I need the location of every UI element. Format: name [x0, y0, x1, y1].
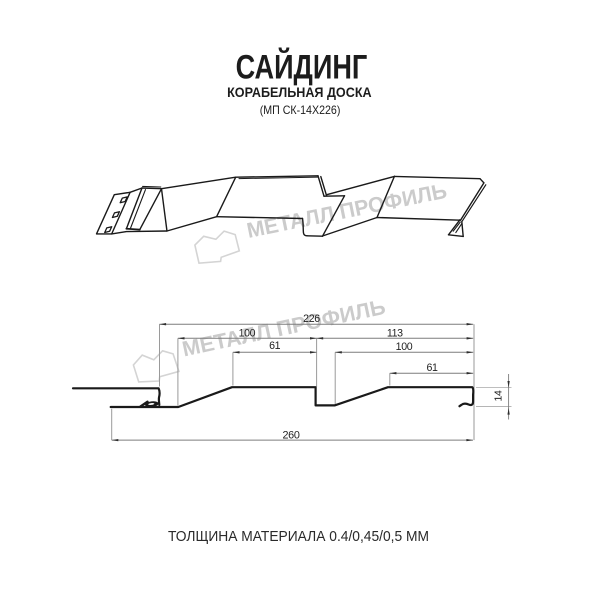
svg-text:МЕТАЛЛ ПРОФИЛЬ: МЕТАЛЛ ПРОФИЛЬ: [180, 295, 387, 362]
svg-text:КОРАБЕЛЬНАЯ ДОСКА: КОРАБЕЛЬНАЯ ДОСКА: [227, 85, 372, 100]
svg-text:МЕТАЛЛ ПРОФИЛЬ: МЕТАЛЛ ПРОФИЛЬ: [245, 179, 449, 243]
svg-text:ТОЛЩИНА МАТЕРИАЛА 0.4/0,45/0,5: ТОЛЩИНА МАТЕРИАЛА 0.4/0,45/0,5 ММ: [168, 529, 429, 545]
svg-text:113: 113: [387, 328, 403, 340]
svg-text:САЙДИНГ: САЙДИНГ: [236, 47, 368, 86]
svg-text:100: 100: [396, 341, 413, 353]
svg-text:(МП СК-14Х226): (МП СК-14Х226): [260, 103, 341, 117]
svg-text:14: 14: [493, 390, 505, 401]
svg-text:260: 260: [283, 430, 300, 442]
svg-text:61: 61: [426, 362, 438, 374]
svg-text:226: 226: [303, 313, 320, 325]
svg-text:100: 100: [239, 328, 256, 340]
svg-text:61: 61: [269, 340, 281, 352]
